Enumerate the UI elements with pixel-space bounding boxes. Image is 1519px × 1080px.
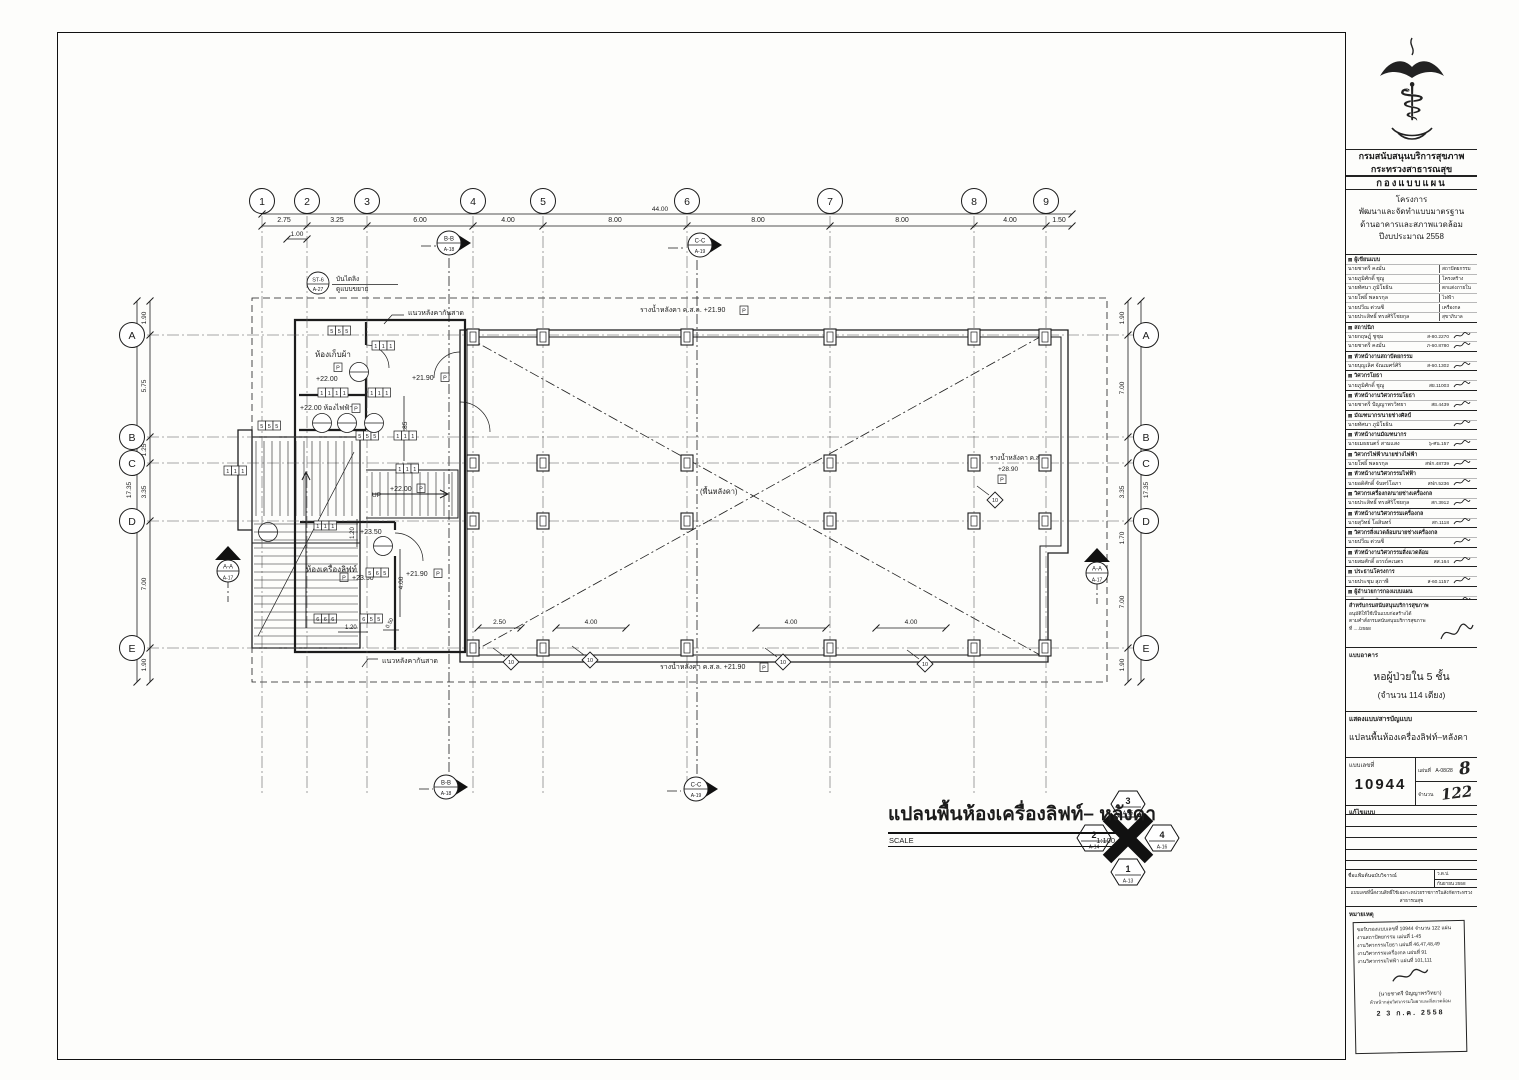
section-icon: ▤ — [1348, 258, 1352, 262]
section-icon: ▤ — [1348, 531, 1352, 535]
section-icon: ▤ — [1348, 551, 1352, 555]
project-line: ปีงบประมาณ 2558 — [1346, 231, 1477, 243]
agency-name-1: กรมสนับสนุนบริการสุขภาพ — [1346, 150, 1477, 163]
signature-scribble — [1451, 537, 1475, 548]
plan-annotation: 0.50 — [385, 617, 396, 629]
dim-text: 4.00 — [501, 217, 515, 224]
personnel-row: นายเมธยนตร์ สามแสง๖-ศน.157 — [1346, 439, 1477, 449]
revision-label: แก้ไขแบบ — [1346, 806, 1477, 815]
caduceus-icon: ⚕ — [1372, 36, 1452, 146]
person-name: นายประชุม สุภาพี — [1348, 578, 1427, 586]
wall-tag: 5 — [268, 424, 271, 430]
column-symbol — [681, 513, 693, 529]
dim-text: 1.70 — [1119, 531, 1126, 544]
grid-bubble-label: D — [128, 516, 136, 528]
wall-tag: 1 — [382, 344, 385, 350]
content-name: แปลนพื้นห้องเครื่องลิฟท์–หลังคา — [1346, 726, 1477, 744]
wall-tag: 1 — [411, 434, 414, 440]
grid-bubble-label: D — [1142, 516, 1150, 528]
column-symbol — [824, 640, 836, 656]
title-rule-thin — [888, 846, 1116, 847]
building-label: แบบอาคาร — [1346, 648, 1477, 662]
wall-tag: 5 — [368, 571, 371, 577]
section-icon: ▤ — [1348, 374, 1352, 378]
personnel-section: ▤วิศวกรไฟฟ้า/นายช่างไฟฟ้านายโพธิ์ พลธรกุ… — [1346, 449, 1477, 469]
dim-text: 8.00 — [751, 217, 765, 224]
revision-row — [1346, 815, 1477, 827]
wall-tag: 1 — [343, 391, 346, 397]
column-symbol — [467, 640, 479, 656]
personnel-row: นายประสิทธิ์ ทรงศิริโชยกุลสก.3912 — [1346, 498, 1477, 508]
plan-annotation: +28.90 — [998, 466, 1018, 473]
sheet-content-box: แสดงแบบ/สารบัญแบบ แปลนพื้นห้องเครื่องลิฟ… — [1346, 712, 1477, 758]
plan-annotation: +22.00 — [316, 376, 338, 383]
sheet-count-cell: จำนวน 122 — [1416, 782, 1477, 805]
section-marker-sheet: A-19 — [695, 249, 706, 255]
wall-tag: 1 — [406, 467, 409, 473]
section-title: หัวหน้างานวิศวกรรมโยธา — [1354, 392, 1415, 400]
section-marker-sheet: A-19 — [691, 793, 702, 799]
wall-tag: 1 — [226, 469, 229, 475]
section-cut-lines — [228, 246, 1097, 791]
plan-annotation: +22.00 ห้องไฟฟ้า — [300, 403, 353, 412]
signature-scribble — [1451, 459, 1475, 470]
stamp-signature — [1358, 966, 1462, 989]
diamond-leader — [977, 486, 989, 495]
remark-box: หมายเหตุ ขอรับรองแบบเลขที่ 10944 จำนวน 1… — [1346, 907, 1477, 1060]
revision-row — [1346, 827, 1477, 839]
grid-bubble-label: C — [1142, 458, 1150, 470]
signature-scribble — [1451, 361, 1475, 372]
column-symbol — [968, 455, 980, 471]
section-title: ประธานโครงการ — [1354, 568, 1394, 576]
grid-bubble-label: E — [128, 643, 135, 655]
dim-text-total: 17.35 — [126, 481, 133, 498]
person-name: นายชาตรี คงมั่น — [1348, 265, 1439, 273]
column-symbol — [1039, 513, 1051, 529]
column-symbol — [681, 640, 693, 656]
wall-tag: 5 — [275, 424, 278, 430]
personnel-section-header: ▤สถาปนิก — [1346, 323, 1477, 332]
column-symbol — [1039, 640, 1051, 656]
plan-annotation: +22.00 — [390, 486, 412, 493]
section-title: หัวหน้างานวิศวกรรมสิ่งแวดล้อม — [1354, 549, 1428, 557]
sheet-count-handwritten: 122 — [1440, 782, 1473, 804]
personnel-row: นายบุญเลิศ จัณเมศร์ศิริส-60.1302 — [1346, 361, 1477, 371]
license-number: สฟก.48739 — [1425, 460, 1449, 468]
personnel-section-header: ▤วิศวกรสิ่งแวดล้อม/นายช่างเครื่องกล — [1346, 528, 1477, 537]
level-tag: P — [336, 366, 340, 372]
dim-text: 7.00 — [141, 577, 148, 590]
dim-text: 4.00 — [905, 619, 918, 626]
division-name: กองแบบแผน — [1346, 176, 1477, 190]
keyplan-east-ref: A-16 — [1157, 845, 1168, 851]
dim-text: 2.75 — [277, 217, 291, 224]
personnel-section-header: ▤วิศวกรไฟฟ้า/นายช่างไฟฟ้า — [1346, 450, 1477, 459]
person-role: สถาปัตยกรรม — [1439, 265, 1475, 273]
column-symbol — [968, 640, 980, 656]
personnel-section-header: ▤หัวหน้างานสถาปัตยกรรม — [1346, 352, 1477, 361]
level-tag: P — [1000, 478, 1004, 484]
project-label: โครงการ — [1346, 194, 1477, 206]
section-title: วิศวกรสิ่งแวดล้อม/นายช่างเครื่องกล — [1354, 529, 1437, 537]
signature-scribble — [1451, 478, 1475, 489]
grid-bubble-label: 8 — [971, 196, 977, 208]
section-marker-name: B-B — [444, 237, 454, 243]
person-name: นายอดิศักดิ์ จันทร์โอภา — [1348, 480, 1428, 488]
signature-scribble — [1451, 556, 1475, 567]
wall-tag: 1 — [241, 469, 244, 475]
license-number: ส-80.2270 — [1427, 333, 1449, 341]
approval-header: สำหรับกรมสนับสนุนบริการสุขภาพ — [1349, 602, 1474, 611]
wall-tag: 6 — [362, 617, 365, 623]
keyplan-east-no: 4 — [1159, 830, 1164, 840]
revision-row — [1346, 850, 1477, 862]
wall-tag: 5 — [345, 329, 348, 335]
dim-text-overall: 44.00 — [652, 206, 669, 213]
personnel-section-header: ▤ผู้อำนวยการกองแบบแผน — [1346, 587, 1477, 596]
person-role: โครงสร้าง — [1439, 275, 1475, 283]
dim-text: 4.00 — [585, 619, 598, 626]
agency-name-2: กระทรวงสาธารณสุข — [1346, 163, 1477, 176]
person-name: นายกฤษฎุ์ ชูชุม — [1348, 333, 1427, 341]
revision-box: แก้ไขแบบ — [1346, 806, 1477, 870]
sheet-number-label: แผ่นที่ — [1418, 768, 1431, 774]
section-icon: ▤ — [1348, 492, 1352, 496]
column-symbol — [824, 513, 836, 529]
column-symbol — [824, 455, 836, 471]
section-title: มัณฑนากร/นายช่างศิลป์ — [1354, 412, 1411, 420]
wall-tag: 5 — [366, 434, 369, 440]
signature-scribble — [1451, 419, 1475, 430]
section-title: ผู้อำนวยการกองแบบแผน — [1354, 588, 1412, 596]
detail-diamond-label: 10 — [508, 660, 514, 666]
personnel-section: ▤หัวหน้างานวิศวกรรมโยธานายชาตรี ปัญญาพรว… — [1346, 390, 1477, 410]
personnel-section-header: ▤หัวหน้างานวิศวกรรมโยธา — [1346, 391, 1477, 400]
personnel-row: นายประสิทธิ์ ทรงศิริโชยกุลสุขาภิบาล — [1346, 312, 1477, 322]
dim-text: 4.00 — [1003, 217, 1017, 224]
section-marker-name: B-B — [441, 781, 451, 787]
plan-annotation: UP — [372, 492, 381, 499]
signature-scribble — [1451, 439, 1475, 450]
personnel-section: ▤หัวหน้างานมัณฑนากรนายเมธยนตร์ สามแสง๖-ศ… — [1346, 429, 1477, 449]
file-row: ชื่อแฟ้มต้นฉบับวิจารณ์ ว.ด.ป. กันยายน 25… — [1346, 870, 1477, 888]
wall-tag: 1 — [378, 391, 381, 397]
license-number: สส.164 — [1434, 558, 1449, 566]
grid-bubble-label: E — [1142, 643, 1149, 655]
building-name: หอผู้ป่วยใน 5 ชั้น — [1346, 668, 1477, 685]
license-number: ส-60.1302 — [1427, 362, 1449, 370]
signature-scribble — [1451, 341, 1475, 352]
wall-tag: 1 — [389, 344, 392, 350]
person-name: นายชาตรี คงมั่น — [1348, 342, 1427, 350]
dim-text: 1.25 — [141, 443, 148, 456]
wall-tag: 1 — [404, 434, 407, 440]
wall-tag: 1 — [316, 524, 319, 530]
sheet-number-handwritten: 8 — [1458, 758, 1472, 779]
dim-text: 1.90 — [141, 311, 148, 324]
plan-annotation: +23.50 — [360, 529, 382, 536]
plan-annotation: รางน้ำหลังคา ค.ส.ล. +21.90 — [640, 303, 725, 314]
grid-bubble-label: B — [128, 432, 135, 444]
plan-annotation: แนวหลังคากันสาด — [408, 309, 464, 317]
license-number: สฟก.5236 — [1428, 480, 1449, 488]
dim-text: 1.90 — [1119, 658, 1126, 671]
wall-tag: 1 — [331, 524, 334, 530]
person-name: นายทัศนา ภูมิโยธิน — [1348, 421, 1451, 429]
personnel-section: ▤วิศวกรเครื่องกล/นายช่างเครื่องกลนายประส… — [1346, 488, 1477, 508]
column-symbol — [1039, 455, 1051, 471]
wall-tag: 1 — [370, 391, 373, 397]
drawing-number-cell: แบบเลขที่ 10944 — [1346, 758, 1416, 805]
approval-line: อนุมัติให้ใช้เป็นแบบก่อสร้างได้ — [1349, 611, 1474, 619]
personnel-row: นายสมศักดิ์ อรรถ์คเนตรสส.164 — [1346, 557, 1477, 567]
personnel-row: นายภูมิศักดิ์ ชูญูสย.11003 — [1346, 380, 1477, 390]
section-icon: ▤ — [1348, 453, 1352, 457]
person-name: นายสุวิทย์ โอสินทร์ — [1348, 519, 1432, 527]
dim-text: 4.00 — [785, 619, 798, 626]
building-sub: (จำนวน 114 เตียง) — [1346, 688, 1477, 702]
project-line: ด้านอาคารและสภาพแวดล้อม — [1346, 219, 1477, 231]
grid-bubble-label: 2 — [304, 196, 310, 208]
plan-generated: 123456789AABBCCDDEE2.753.256.004.008.008… — [120, 189, 1159, 802]
person-name: นายเมธยนตร์ สามแสง — [1348, 440, 1429, 448]
personnel-row: นายชาตรี คงมั่นภ-60.8780 — [1346, 341, 1477, 351]
personnel-row: นายทัศนา ภูมิโยธิน — [1346, 420, 1477, 430]
wall-tag: 5 — [260, 424, 263, 430]
section-icon: ▤ — [1348, 394, 1352, 398]
license-number: สย.11003 — [1429, 382, 1449, 390]
plan-annotation: 4.00 — [398, 576, 405, 589]
wall-tag: 1 — [234, 469, 237, 475]
column-symbol — [537, 513, 549, 529]
grid-bubble-label: B — [1142, 432, 1149, 444]
grid-bubble-label: 6 — [684, 196, 690, 208]
wall-tag: 1 — [413, 467, 416, 473]
person-name: นายทัศนา ภูมิโยธิน — [1348, 284, 1439, 292]
personnel-row: นายอดิศักดิ์ จันทร์โอภาสฟก.5236 — [1346, 478, 1477, 488]
personnel-section: ▤สถาปนิกนายกฤษฎุ์ ชูชุมส-80.2270นายชาตรี… — [1346, 322, 1477, 351]
approval-signature — [1439, 621, 1475, 645]
date-value: กันยายน 2558 — [1435, 880, 1477, 888]
personnel-section: ▤หัวหน้างานวิศวกรรมสิ่งแวดล้อมนายสมศักดิ… — [1346, 547, 1477, 567]
file-label: ชื่อแฟ้มต้นฉบับวิจารณ์ — [1346, 870, 1435, 887]
section-marker-sheet: A-18 — [444, 247, 455, 253]
license-number: ส-60.1157 — [1427, 578, 1449, 586]
personnel-row: นายปวีณ ต่วนซี — [1346, 537, 1477, 547]
scale-value: 1:100 — [1096, 836, 1115, 845]
grid-bubble-label: A — [128, 330, 135, 342]
section-marker-sheet: A-18 — [441, 791, 452, 797]
dim-text: 1.00 — [291, 231, 304, 238]
level-tag: P — [443, 376, 447, 382]
personnel-section-header: ▤หัวหน้างานวิศวกรรมเครื่องกล — [1346, 509, 1477, 518]
personnel-row: นายชาตรี ปัญญาพรวิทยาสย.4439 — [1346, 400, 1477, 410]
wall-tag: 1 — [324, 524, 327, 530]
dim-text: 3.35 — [1119, 485, 1126, 498]
wall-tag: 1 — [396, 434, 399, 440]
copyright-notice: แบบเลขที่นี้สงวนสิทธิ์ใช้เฉพาะหน่วยราชกา… — [1346, 888, 1477, 907]
personnel-section: ▤ผู้อำนวยการกองแบบแผนนายศรี ดานุสิธรรมวล… — [1346, 586, 1477, 600]
level-tag: P — [436, 572, 440, 578]
grid-bubble-label: C — [128, 458, 136, 470]
personnel-row: นายโพธิ์ พลธรกุลสฟก.48739 — [1346, 459, 1477, 469]
section-marker-name: C-C — [691, 783, 702, 789]
person-name: นายปวีณ ต่วนซี — [1348, 304, 1439, 312]
section-title: หัวหน้างานวิศวกรรมไฟฟ้า — [1354, 470, 1416, 478]
moph-emblem: ⚕ — [1346, 32, 1477, 150]
personnel-section-header: ▤หัวหน้างานวิศวกรรมไฟฟ้า — [1346, 469, 1477, 478]
license-number: ภ-60.8780 — [1427, 342, 1449, 350]
personnel-row: นายโพธิ์ พลธรกุลไฟฟ้า — [1346, 293, 1477, 303]
section-arrow — [1084, 548, 1110, 562]
person-name: นายภูมิศักดิ์ ชูญู — [1348, 382, 1429, 390]
dim-text: 8.00 — [608, 217, 622, 224]
section-title: วิศวกรโยธา — [1354, 372, 1382, 380]
plan-annotation: +21.90 — [406, 571, 428, 578]
section-title: หัวหน้างานสถาปัตยกรรม — [1354, 353, 1412, 361]
wall-tag: 5 — [373, 434, 376, 440]
section-icon: ▤ — [1348, 570, 1352, 574]
personnel-section: ▤มัณฑนากร/นายช่างศิลป์นายทัศนา ภูมิโยธิน — [1346, 410, 1477, 430]
personnel-section-header: ▤หัวหน้างานมัณฑนากร — [1346, 430, 1477, 439]
column-symbol — [681, 329, 693, 345]
section-marker-name: A-A — [223, 565, 233, 571]
wall-tag: 6 — [376, 571, 379, 577]
revision-row — [1346, 838, 1477, 850]
section-title: วิศวกรเครื่องกล/นายช่างเครื่องกล — [1354, 490, 1432, 498]
grid-bubble-label: 5 — [540, 196, 546, 208]
dim-text: 8.00 — [895, 217, 909, 224]
person-role: เครื่องกล — [1439, 304, 1475, 312]
wall-tag: 5 — [383, 571, 386, 577]
personnel-section-header: ▤ประธานโครงการ — [1346, 567, 1477, 576]
plan-annotation: แนวหลังคากันสาด — [382, 657, 438, 665]
personnel-table: ▤ผู้เขียนแบบนายชาตรี คงมั่นสถาปัตยกรรมนา… — [1346, 255, 1477, 600]
personnel-section-header: ▤มัณฑนากร/นายช่างศิลป์ — [1346, 411, 1477, 420]
wall-tag: 5 — [377, 617, 380, 623]
license-number: สก.3912 — [1431, 499, 1449, 507]
personnel-section: ▤ผู้เขียนแบบนายชาตรี คงมั่นสถาปัตยกรรมนา… — [1346, 255, 1477, 322]
personnel-row: นายสุวิทย์ โอสินทร์สก.1118 — [1346, 518, 1477, 528]
wall-tag: 1 — [398, 467, 401, 473]
grid-bubble-label: 4 — [470, 196, 476, 208]
diamond-leader — [765, 648, 777, 657]
personnel-section-header: ▤หัวหน้างานวิศวกรรมสิ่งแวดล้อม — [1346, 548, 1477, 557]
column-symbol — [467, 329, 479, 345]
dim-text: 1.90 — [1119, 311, 1126, 324]
plan-annotation: บันไดลิง — [336, 275, 359, 283]
dim-text: 3.35 — [141, 485, 148, 498]
detail-note-code: ST-6 — [312, 278, 324, 284]
dim-text: 1.50 — [1052, 217, 1066, 224]
title-block: ⚕ กรมสนับสนุนบริการสุขภาพ กระทรวงสาธารณส… — [1345, 32, 1477, 1060]
plan-annotation: ดูแบบขยาย — [336, 286, 369, 293]
project-line: พัฒนาและจัดทำแบบมาตรฐาน — [1346, 206, 1477, 218]
grid-bubble-label: 7 — [827, 196, 833, 208]
person-name: นายชาตรี ปัญญาพรวิทยา — [1348, 401, 1431, 409]
wall-tag: 5 — [370, 617, 373, 623]
section-arrow — [215, 546, 241, 560]
person-name: นายบุญเลิศ จัณเมศร์ศิริ — [1348, 362, 1427, 370]
approval-box: สำหรับกรมสนับสนุนบริการสุขภาพ อนุมัติให้… — [1346, 600, 1477, 648]
personnel-row: นายชาตรี คงมั่นสถาปัตยกรรม — [1346, 264, 1477, 274]
person-name: นายปวีณ ต่วนซี — [1348, 538, 1451, 546]
grid-bubble-label: A — [1142, 330, 1149, 342]
wall-tag: 1 — [385, 391, 388, 397]
revision-row — [1346, 861, 1477, 870]
drawing-number-box: แบบเลขที่ 10944 แผ่นที่ A-08/28 8 จำนวน … — [1346, 758, 1477, 806]
dim-text: 7.00 — [1119, 381, 1126, 394]
detail-diamond-label: 10 — [992, 498, 998, 504]
content-label: แสดงแบบ/สารบัญแบบ — [1346, 712, 1477, 726]
personnel-row: นายประชุม สุภาพีส-60.1157 — [1346, 576, 1477, 586]
floor-plan-canvas: 123456789AABBCCDDEE2.753.256.004.008.008… — [0, 0, 1519, 1080]
wall-tag: 5 — [338, 329, 341, 335]
person-name: นายประสิทธิ์ ทรงศิริโชยกุล — [1348, 499, 1431, 507]
drawing-number-value: 10944 — [1346, 776, 1415, 793]
section-icon: ▤ — [1348, 414, 1352, 418]
scale-label: SCALE — [889, 836, 914, 845]
grid-bubble-label: 9 — [1043, 196, 1049, 208]
section-marker-sheet: A-17 — [1092, 578, 1103, 584]
plan-annotation: 1.20 — [350, 527, 356, 539]
section-icon: ▤ — [1348, 512, 1352, 516]
personnel-section: ▤หัวหน้างานสถาปัตยกรรมนายบุญเลิศ จัณเมศร… — [1346, 351, 1477, 371]
plan-annotation: (พื้นหลังคา) — [700, 486, 738, 496]
person-name: นายประสิทธิ์ ทรงศิริโชยกุล — [1348, 313, 1439, 321]
column-symbol — [537, 455, 549, 471]
wall-tag: 1 — [335, 391, 338, 397]
personnel-section: ▤หัวหน้างานวิศวกรรมเครื่องกลนายสุวิทย์ โ… — [1346, 508, 1477, 528]
column-symbol — [968, 329, 980, 345]
plan-title: แปลนพื้นห้องเครื่องลิฟท์– หลังคา — [888, 799, 1116, 829]
grid-bubble-label: 3 — [364, 196, 370, 208]
detail-note-ref: A-27 — [313, 287, 324, 293]
sheet-count-label: จำนวน — [1418, 792, 1433, 798]
personnel-row: นายกฤษฎุ์ ชูชุมส-80.2270 — [1346, 332, 1477, 342]
personnel-section: ▤ประธานโครงการนายประชุม สุภาพีส-60.1157 — [1346, 566, 1477, 586]
svg-text:⚕: ⚕ — [1397, 74, 1425, 132]
personnel-section-header: ▤ผู้เขียนแบบ — [1346, 255, 1477, 264]
person-name: นายสมศักดิ์ อรรถ์คเนตร — [1348, 558, 1434, 566]
signature-scribble — [1451, 576, 1475, 587]
section-icon: ▤ — [1348, 590, 1352, 594]
date-label: ว.ด.ป. — [1435, 870, 1477, 880]
remark-label: หมายเหตุ — [1349, 909, 1374, 919]
section-marker-name: A-A — [1092, 567, 1102, 573]
section-title: หัวหน้างานวิศวกรรมเครื่องกล — [1354, 510, 1423, 518]
section-title: วิศวกรไฟฟ้า/นายช่างไฟฟ้า — [1354, 451, 1417, 459]
keyplan-south-no: 1 — [1125, 864, 1130, 874]
dim-text: 2.50 — [493, 619, 506, 626]
dim-text: 7.00 — [1119, 595, 1126, 608]
personnel-row: นายภูมิศักดิ์ ชูญูโครงสร้าง — [1346, 274, 1477, 284]
certification-stamp: ขอรับรองแบบเลขที่ 10944 จำนวน 122 แผ่น ง… — [1353, 920, 1468, 1054]
stamp-date: 2 3 ก.ค. 2558 — [1358, 1007, 1462, 1021]
personnel-row: นายทัศนา ภูมิโยธินตกแต่งภายใน — [1346, 283, 1477, 293]
column-symbol — [824, 329, 836, 345]
plan-annotation: +21.90 — [412, 375, 434, 382]
wall-tag: 5 — [358, 434, 361, 440]
person-name: นายภูมิศักดิ์ ชูญู — [1348, 275, 1439, 283]
column-symbol — [968, 513, 980, 529]
signature-scribble — [1451, 517, 1475, 528]
person-role: ไฟฟ้า — [1439, 294, 1475, 302]
column-symbol — [467, 513, 479, 529]
personnel-row: นายปวีณ ต่วนซีเครื่องกล — [1346, 302, 1477, 312]
license-number: สย.4439 — [1431, 401, 1449, 409]
